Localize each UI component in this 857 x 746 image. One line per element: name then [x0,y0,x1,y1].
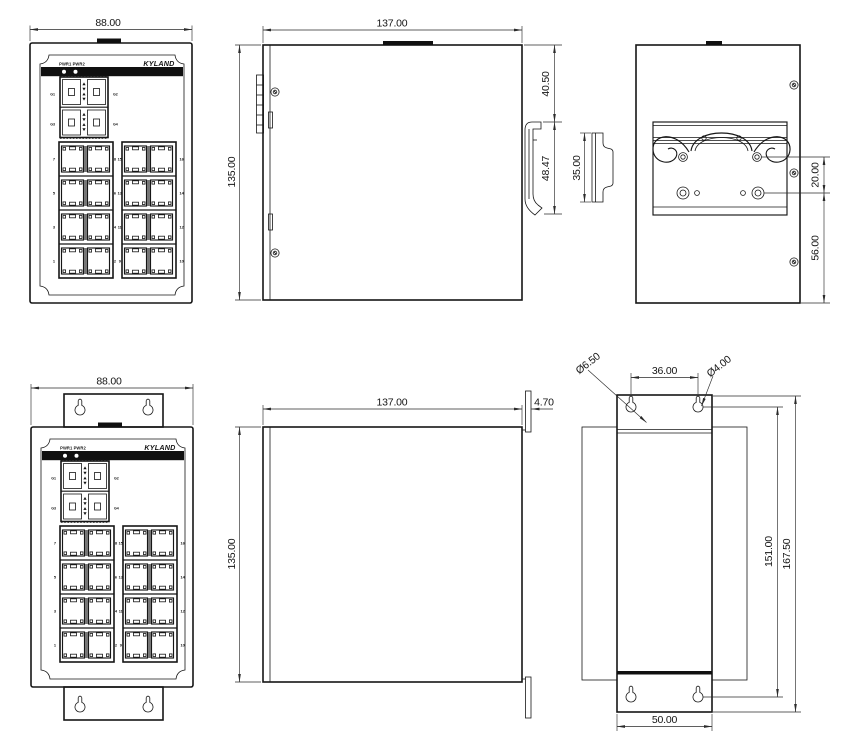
dim-front-din-width: 88.00 [30,17,192,41]
svg-text:135.00: 135.00 [226,156,238,187]
dim-hole-pitch-y: 151.00 [703,407,783,697]
din-bracket [653,122,790,215]
plate-fold-line [617,671,712,675]
rear-view-wall: 36.00 Ø6.50 Ø4.00 151.00 167.50 50.00 [574,350,801,731]
dim-plate-width: 50.00 [617,714,712,731]
latch-tab-lower [269,214,273,230]
callout-small-hole: Ø4.00 [702,353,735,406]
mount-plate [617,395,712,712]
dim-side-wall-height: 135.00 [226,427,261,682]
front-view-din: 88.00 [30,17,192,303]
spring-handle [691,133,752,151]
svg-text:Ø4.00: Ø4.00 [705,353,734,380]
rear-body [636,45,800,303]
svg-text:88.00: 88.00 [96,376,122,388]
svg-text:4.70: 4.70 [534,397,554,409]
svg-text:167.50: 167.50 [781,538,793,569]
dim-side-din-width: 137.00 [263,18,522,44]
front-view-wall: 88.00 [31,376,193,721]
wall-plate-edge-bottom [526,677,532,718]
dim-rear-bottom-offset: 56.00 [801,193,830,303]
dim-rear-hole-pitch: 20.00 [761,157,830,193]
svg-text:50.00: 50.00 [652,714,678,726]
drawing-svg: PWR1 PWR2 KYLAND G1 G2 G3 [0,0,857,746]
body-wing-right [712,427,747,680]
body-wing-left [582,427,617,680]
dim-clip-length: 48.47 [540,122,562,214]
side-view-wall: 137.00 4.70 135.00 [226,391,554,718]
dim-hole-pitch-x: 36.00 [631,365,698,394]
top-tab [383,41,433,45]
svg-text:36.00: 36.00 [652,365,678,377]
wall-plate-edge-top [526,391,532,432]
side-view-din: 137.00 135.00 40.50 48.47 [226,18,562,301]
dim-front-wall-width: 88.00 [31,376,193,426]
svg-text:56.00: 56.00 [810,235,822,261]
top-tab [706,41,722,45]
side-body [263,427,522,682]
front-panel-instance-din [30,39,192,304]
svg-text:88.00: 88.00 [95,17,121,29]
side-body [263,45,522,300]
svg-text:135.00: 135.00 [226,538,238,569]
svg-text:48.47: 48.47 [540,156,552,182]
dim-rail-height: 35.00 [571,133,591,202]
din-rail-profile: 35.00 [571,133,613,202]
svg-text:137.00: 137.00 [377,18,408,30]
dim-side-din-height: 135.00 [226,45,261,300]
mechanical-drawing: PWR1 PWR2 KYLAND G1 G2 G3 [0,0,857,746]
svg-text:40.50: 40.50 [540,71,552,97]
svg-text:20.00: 20.00 [810,162,822,188]
dim-side-wall-width: 137.00 [263,397,522,426]
svg-text:137.00: 137.00 [377,397,408,409]
dim-plate-thickness: 4.70 [532,397,555,410]
front-panel-instance-wall [31,423,193,688]
wall-plate-bottom [64,687,163,720]
svg-text:151.00: 151.00 [763,536,775,567]
dim-plate-height: 167.50 [713,396,801,712]
rear-view-din: 20.00 56.00 [636,41,830,303]
dim-clip-offset: 40.50 [524,45,562,122]
svg-text:Ø6.50: Ø6.50 [574,350,603,377]
callout-big-hole: Ø6.50 [574,350,647,422]
svg-text:35.00: 35.00 [571,155,583,181]
latch-tab-upper [269,112,273,128]
